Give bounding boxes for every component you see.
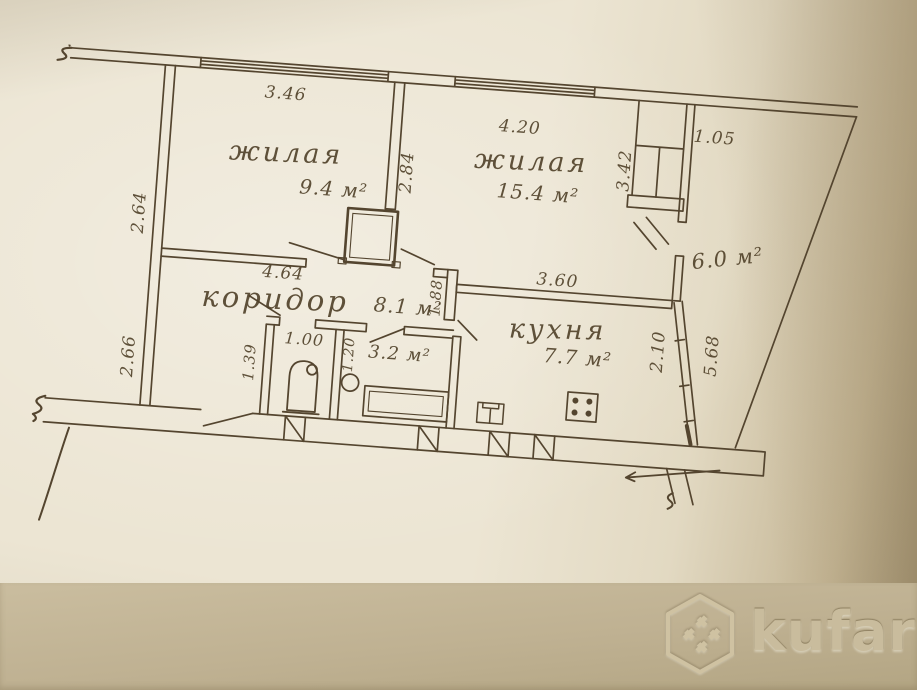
bathtub-icon: [363, 386, 449, 422]
room1-area: 9.4 м²: [298, 174, 368, 203]
dimension-label: 1.88: [425, 278, 446, 317]
kufar-watermark: kufar: [660, 592, 910, 682]
floor-plan: жилая 9.4 м² жилая 15.4 м² коридор 8.1 м…: [4, 43, 880, 615]
dimension-label: 4.20: [498, 116, 541, 139]
stairwell-stub-wall: [624, 464, 720, 513]
dimension-label: 5.68: [701, 334, 724, 377]
toilet-icon: [283, 360, 323, 415]
dimension-label: 2.64: [128, 191, 151, 234]
dimension-label: 3.60: [536, 269, 579, 292]
kitchen-area: 7.7 м²: [542, 343, 612, 372]
room1-name: жилая: [228, 135, 343, 171]
floorplan-linework: [4, 43, 880, 615]
stove-icon: [566, 392, 598, 422]
dimension-label: 4.64: [262, 262, 305, 285]
wall-hatch: [417, 426, 439, 451]
dimension-label: 2.66: [117, 334, 140, 377]
corridor-name: коридор: [201, 279, 350, 319]
kitchen-name: кухня: [508, 313, 606, 346]
closet-top-right: [627, 100, 691, 211]
dimension-label: 3.46: [264, 82, 307, 105]
wall-hatch: [284, 416, 306, 441]
entrance-door: [204, 410, 253, 430]
dimension-label: 1.39: [239, 343, 260, 382]
kufar-hexagon-logo-icon: [660, 592, 740, 676]
balcony-door: [632, 216, 670, 250]
wall-hatch: [488, 431, 510, 456]
sink-icon: [477, 402, 504, 424]
kufar-watermark-text: kufar: [750, 600, 916, 663]
toilet-left-wall: [260, 324, 275, 414]
left-exterior-wall: [140, 65, 176, 406]
room2-name: жилая: [474, 144, 589, 180]
dimension-label: 3.42: [613, 149, 636, 192]
room2-door: [400, 249, 435, 265]
bottom-exterior-wall: [25, 395, 765, 574]
dimension-label: 2.10: [647, 330, 670, 373]
dimension-label: 1.20: [340, 336, 359, 372]
balcony-outer-edge: [735, 110, 856, 455]
closet-center: [338, 208, 404, 268]
washbasin-icon: [341, 374, 359, 392]
dimension-label: 2.84: [396, 151, 419, 194]
kitchen-left-wall: [446, 336, 461, 428]
photo-background: жилая 9.4 м² жилая 15.4 м² коридор 8.1 м…: [0, 0, 917, 690]
dimension-label: 1.05: [693, 127, 736, 150]
room1-door: [288, 243, 345, 260]
dimension-label: 1.00: [284, 328, 325, 350]
wall-hatch: [533, 435, 555, 460]
